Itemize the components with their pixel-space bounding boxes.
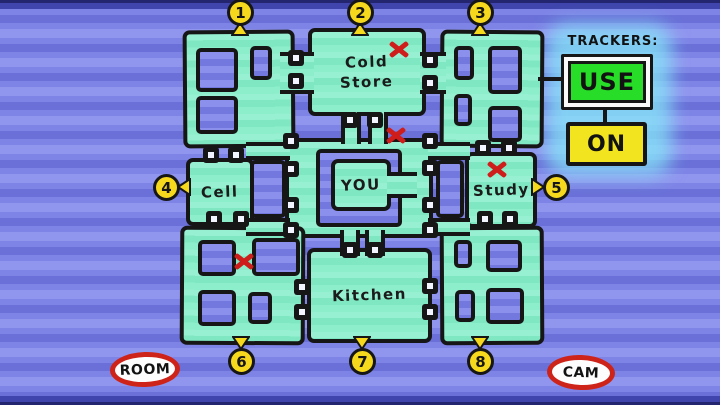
map-pin-2[interactable]: 2	[347, 0, 374, 26]
room-cold-store-label: Cold	[345, 51, 389, 73]
door-marker	[422, 160, 438, 176]
map-pin-7[interactable]: 7	[349, 348, 376, 375]
map-pin-8[interactable]: 8	[467, 348, 494, 375]
you-bridge	[387, 172, 417, 198]
door-marker	[283, 133, 299, 149]
door-marker	[422, 197, 438, 213]
door-marker	[502, 211, 518, 227]
map-pin-5[interactable]: 5	[543, 174, 570, 201]
door-marker	[294, 304, 310, 320]
trackers-title: TRACKERS:	[556, 34, 670, 49]
hole-cell-gap	[250, 160, 286, 218]
door-marker	[342, 112, 358, 128]
map-pin-4[interactable]: 4	[153, 174, 180, 201]
hole-tr-2	[488, 46, 522, 94]
hole-br-1	[454, 240, 472, 268]
door-marker	[422, 133, 438, 149]
door-marker	[367, 242, 383, 258]
hole-tr-3	[454, 94, 472, 126]
door-marker	[283, 197, 299, 213]
hole-bl-4	[248, 292, 272, 324]
hole-tr-1	[454, 46, 474, 80]
hole-tr-4	[488, 106, 522, 142]
door-marker	[206, 211, 222, 227]
door-marker	[203, 147, 219, 163]
hole-tl-2	[250, 46, 272, 80]
on-button[interactable]: ON	[566, 122, 647, 166]
door-marker	[477, 211, 493, 227]
door-marker	[475, 140, 491, 156]
door-marker	[233, 211, 249, 227]
x-mark-cold-store	[389, 40, 409, 58]
x-mark-study	[487, 160, 507, 178]
door-marker	[283, 222, 299, 238]
door-marker	[422, 304, 438, 320]
hole-tl-3	[196, 96, 238, 134]
map-pin-6[interactable]: 6	[228, 348, 255, 375]
hole-br-3	[455, 290, 475, 322]
room-you-label: YOU	[341, 174, 381, 196]
door-marker	[283, 161, 299, 177]
door-marker	[294, 279, 310, 295]
room-kitchen-label: Kitchen	[332, 284, 408, 307]
door-marker	[422, 278, 438, 294]
room-kitchen[interactable]: Kitchen	[307, 248, 432, 343]
x-mark-bottom-left-room	[234, 252, 254, 270]
hole-bl-1	[198, 240, 236, 276]
hole-tl-1	[196, 48, 238, 92]
room-study-label: Study	[472, 179, 529, 201]
door-marker	[288, 73, 304, 89]
hole-bl-3	[198, 290, 236, 326]
room-you[interactable]: YOU	[331, 159, 391, 211]
door-marker	[422, 222, 438, 238]
door-marker	[288, 50, 304, 66]
x-mark-center-corridor	[386, 126, 406, 144]
hole-br-2	[486, 240, 522, 272]
door-marker	[228, 147, 244, 163]
map-pin-1[interactable]: 1	[227, 0, 254, 26]
hole-study-gap	[436, 160, 464, 218]
map-pin-3[interactable]: 3	[467, 0, 494, 26]
room-cell-label: Cell	[201, 181, 239, 203]
door-marker	[501, 140, 517, 156]
door-marker	[422, 52, 438, 68]
door-marker	[422, 75, 438, 91]
use-button[interactable]: USE	[568, 61, 646, 103]
door-marker	[342, 242, 358, 258]
hole-bl-2	[252, 238, 300, 276]
hole-br-4	[486, 288, 524, 324]
room-cold-store-label: Store	[340, 71, 394, 93]
door-marker	[367, 112, 383, 128]
use-button-frame: USE	[561, 54, 653, 110]
